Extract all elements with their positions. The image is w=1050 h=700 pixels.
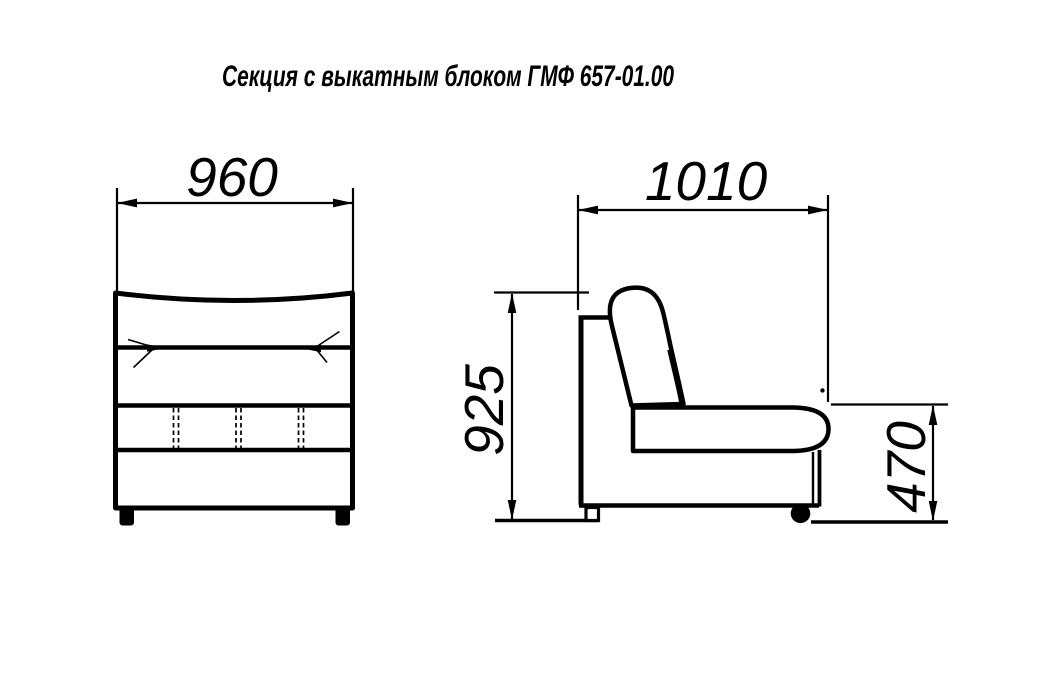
reference-dot	[820, 388, 824, 392]
arrowhead-up-icon	[508, 293, 517, 313]
front-width-value: 960	[186, 146, 278, 208]
side-depth-dimension: 1010	[578, 150, 828, 402]
arrowhead-left-icon	[117, 199, 137, 208]
front-body-outline	[116, 293, 353, 508]
drawing-title: Секция с выкатным блоком ГМФ 657-01.00	[222, 60, 674, 93]
side-view: 1010 925 470	[453, 150, 948, 523]
side-caster-wheel	[791, 504, 811, 523]
arrowhead-right-icon	[808, 206, 828, 215]
side-height-value: 925	[453, 364, 515, 456]
side-sofa-body	[579, 288, 829, 524]
side-height-dimension: 925	[453, 293, 599, 521]
front-foot-right	[336, 508, 351, 526]
technical-drawing-page: Секция с выкатным блоком ГМФ 657-01.00 9…	[0, 0, 1050, 700]
side-depth-value: 1010	[645, 150, 768, 212]
front-foot-left	[120, 508, 135, 526]
arrowhead-left-icon	[578, 206, 598, 215]
seat-height-dimension: 470	[811, 405, 948, 523]
side-backrest-cushion	[610, 288, 684, 406]
side-seat-block	[633, 408, 829, 452]
side-rear-foot	[586, 508, 599, 521]
drawing-svg: Секция с выкатным блоком ГМФ 657-01.00 9…	[0, 0, 1050, 700]
seat-height-value: 470	[875, 421, 937, 513]
front-view: 960	[115, 146, 353, 526]
front-width-dimension: 960	[117, 146, 353, 291]
arrowhead-right-icon	[333, 199, 353, 208]
arrowhead-down-icon	[508, 500, 517, 520]
